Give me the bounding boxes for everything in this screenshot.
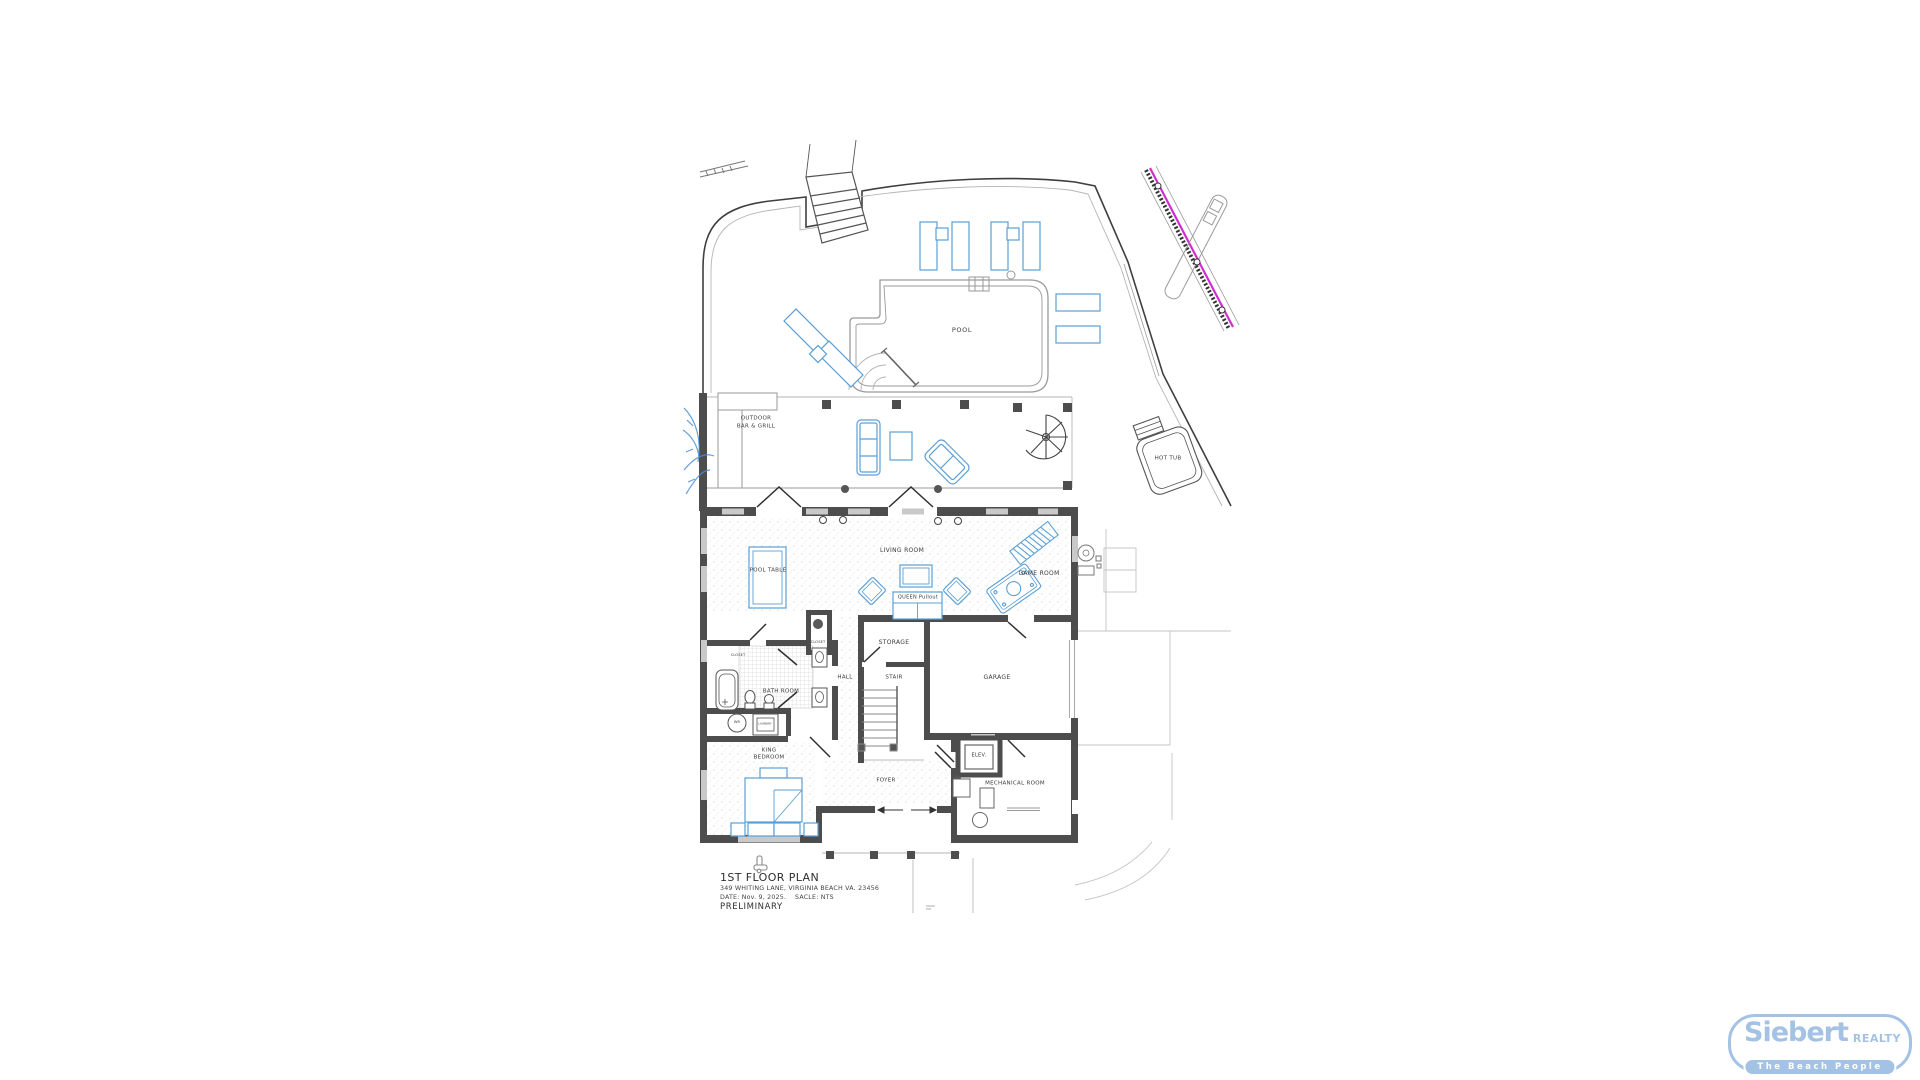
- siebert-realty-logo: Siebert REALTY The Beach People: [1728, 1014, 1912, 1072]
- plan-address: 349 WHITING LANE, VIRGINIA BEACH VA. 234…: [720, 885, 879, 892]
- label-stair: STAIR: [885, 675, 902, 681]
- label-closet-a: CLOSET: [731, 654, 746, 658]
- label-mechanical-room: MECHANICAL ROOM: [985, 781, 1045, 787]
- interior-stair: [858, 686, 924, 760]
- label-laundry: LAUNDRY: [758, 723, 771, 726]
- front-porch: [822, 851, 973, 913]
- label-game-room: GAME ROOM: [1018, 571, 1059, 577]
- label-bath-room: BATH ROOM: [763, 689, 799, 695]
- label-closet-b: CLOSET: [811, 641, 826, 645]
- label-king-bedroom-2: BEDROOM: [754, 755, 785, 761]
- deck-sofa-set: [857, 420, 971, 486]
- logo-brand-text: Siebert: [1744, 1017, 1848, 1048]
- pool-equipment: [1078, 545, 1101, 575]
- beach-walkway-stub: [700, 161, 748, 177]
- label-garage: GARAGE: [984, 675, 1011, 681]
- outdoor-bar-counter: [718, 393, 777, 488]
- logo-realty-text: REALTY: [1853, 1032, 1901, 1045]
- label-pool-table: POOL TABLE: [750, 568, 787, 574]
- label-queen-pullout: QUEEN Pullout: [898, 596, 938, 601]
- covered-deck: [699, 393, 1072, 511]
- label-elev: ELEV.: [972, 754, 987, 759]
- logo-tagline-banner: The Beach People: [1743, 1058, 1896, 1076]
- plan-status: PRELIMINARY: [720, 902, 783, 912]
- plan-title: 1ST FLOOR PLAN: [720, 871, 819, 884]
- label-living-room: LIVING ROOM: [880, 548, 924, 554]
- label-king-bedroom-1: KING: [762, 748, 777, 754]
- elevator: [953, 738, 1000, 783]
- label-pool: POOL: [952, 327, 972, 334]
- label-hall: HALL: [837, 675, 852, 681]
- pool: [849, 271, 1048, 392]
- boardwalk-boundary: [1141, 166, 1239, 331]
- spiral-stair-icon: [1026, 415, 1068, 459]
- label-washer: WR: [734, 721, 740, 725]
- plan-date: DATE: Nov. 9, 2025.: [720, 894, 786, 901]
- floor-plan-drawing: [0, 0, 1920, 1080]
- pool-table: [749, 547, 786, 608]
- label-outdoor-bar-1: OUTDOOR: [741, 416, 772, 422]
- label-outdoor-bar-2: BAR & GRILL: [737, 424, 775, 430]
- plan-scale: SACLE: NTS: [795, 894, 834, 901]
- label-foyer: FOYER: [876, 778, 895, 784]
- label-hot-tub: HOT TUB: [1155, 456, 1182, 462]
- label-storage: STORAGE: [879, 640, 910, 646]
- hot-tub: [1129, 409, 1205, 497]
- plan-sheet: POOL OUTDOOR BAR & GRILL HOT TUB LIVING …: [0, 0, 1920, 1080]
- lounge-chairs: [784, 222, 1100, 387]
- palm-tree: [683, 408, 714, 494]
- driveway-lines: [1075, 529, 1231, 900]
